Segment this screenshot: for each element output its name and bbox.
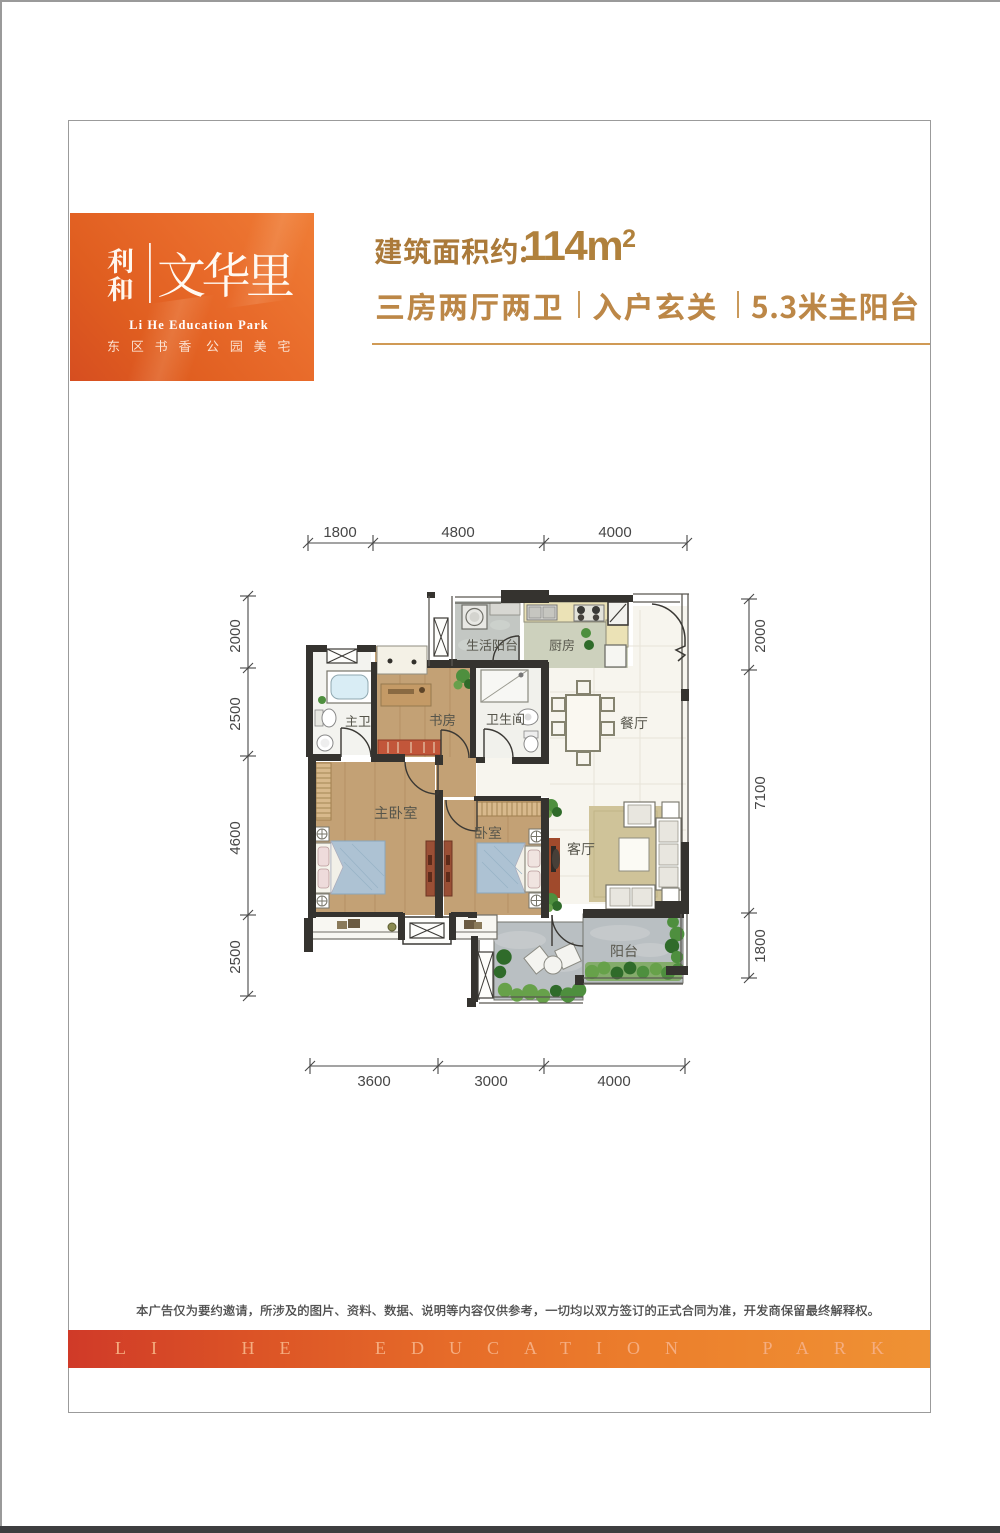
- svg-text:3600: 3600: [357, 1073, 390, 1090]
- svg-text:2000: 2000: [227, 619, 244, 652]
- svg-text:2000: 2000: [752, 619, 769, 652]
- svg-text:4000: 4000: [597, 1073, 630, 1090]
- svg-text:2500: 2500: [227, 940, 244, 973]
- svg-text:1800: 1800: [752, 929, 769, 962]
- svg-text:4800: 4800: [441, 524, 474, 541]
- svg-text:3000: 3000: [474, 1073, 507, 1090]
- svg-text:7100: 7100: [752, 776, 769, 809]
- svg-text:1800: 1800: [323, 524, 356, 541]
- svg-text:2500: 2500: [227, 697, 244, 730]
- svg-text:4000: 4000: [598, 524, 631, 541]
- svg-text:4600: 4600: [227, 821, 244, 854]
